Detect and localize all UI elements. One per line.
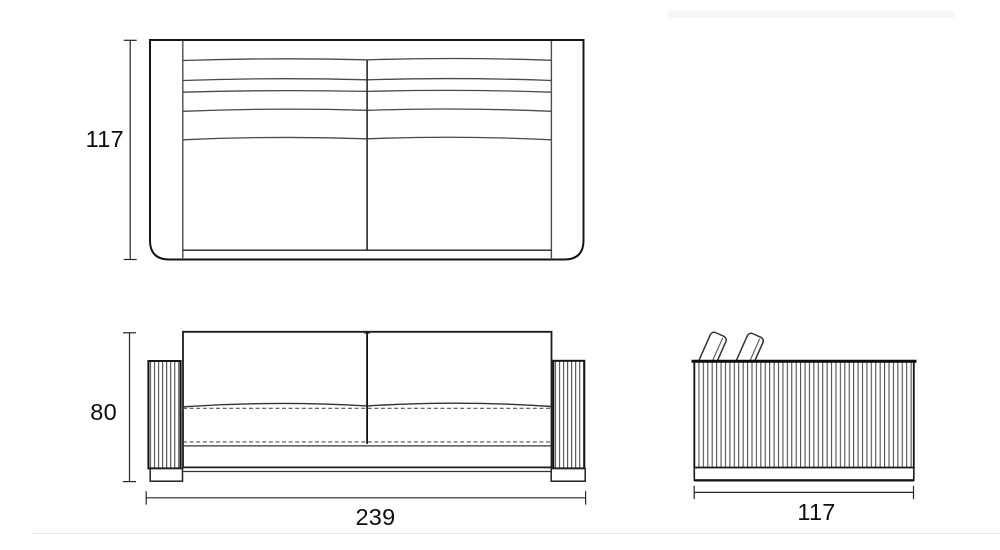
dimension-line-front-height (123, 333, 136, 482)
sofa-dimension-drawing (0, 0, 1000, 550)
dimension-line-top-depth (124, 40, 137, 259)
dimension-label-front-width: 239 (310, 504, 441, 530)
dimension-label-front-height: 80 (56, 399, 117, 425)
side-view-drawing (692, 331, 917, 480)
page-footer-divider (32, 533, 1000, 534)
front-left-arm-panel (148, 361, 180, 468)
dimension-line-front-width (146, 491, 585, 504)
side-plinth (694, 468, 914, 481)
front-right-arm-panel (553, 361, 584, 469)
top-view-drawing (150, 40, 584, 260)
front-right-foot (551, 469, 585, 482)
dimension-label-top-depth: 117 (56, 126, 124, 152)
side-slatted-panel (694, 361, 914, 467)
technical-drawing-page: 117 80 239 117 (0, 0, 1000, 550)
front-view-drawing (148, 332, 585, 481)
dimension-label-side-depth: 117 (751, 499, 882, 525)
dimension-line-side-depth (694, 486, 913, 499)
front-left-foot (150, 469, 182, 482)
